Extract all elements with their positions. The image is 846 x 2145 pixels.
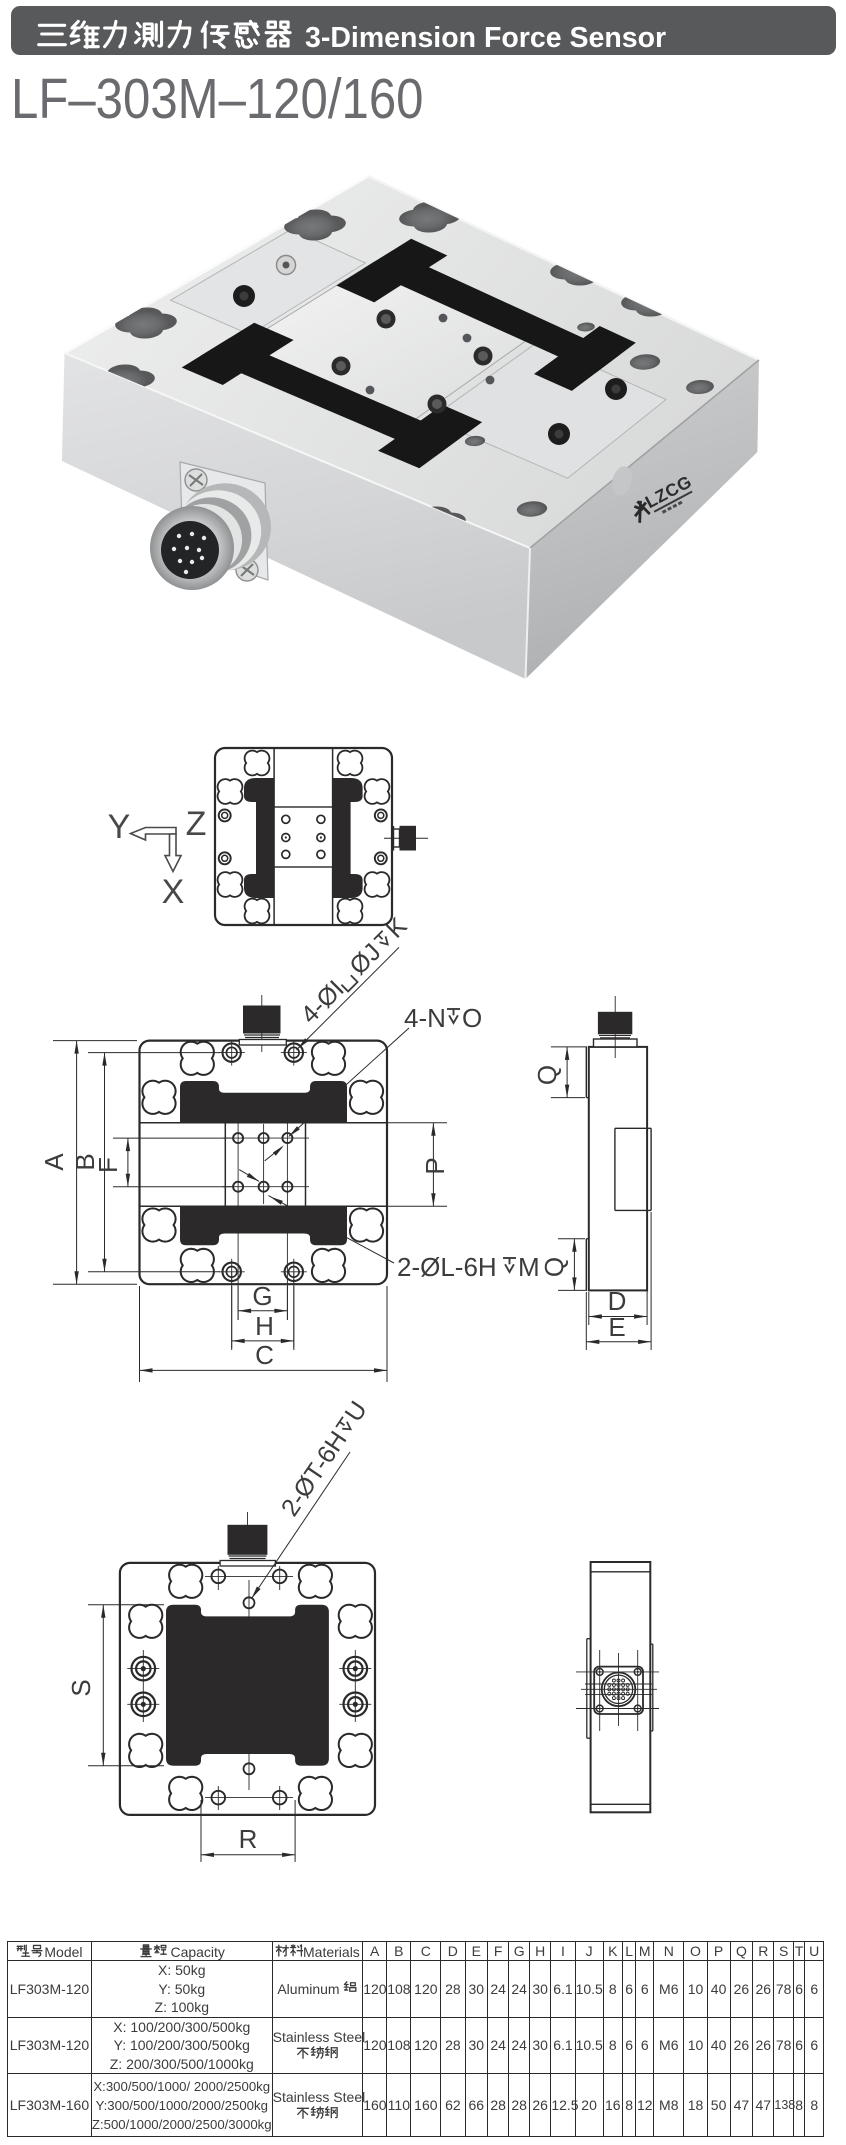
svg-text:Q: Q xyxy=(539,1257,569,1277)
svg-text:Z: Z xyxy=(186,805,207,843)
svg-text:Y: Y xyxy=(108,808,131,846)
svg-text:H: H xyxy=(255,1311,274,1341)
svg-text:P: P xyxy=(420,1157,450,1174)
svg-text:X: X xyxy=(162,873,185,911)
svg-text:2-ØT-6H: 2-ØT-6H xyxy=(276,1426,353,1521)
svg-text:4-N: 4-N xyxy=(404,1003,446,1033)
svg-text:4-ØI: 4-ØI xyxy=(295,975,349,1029)
svg-text:ØJ: ØJ xyxy=(344,938,386,980)
svg-text:O: O xyxy=(462,1003,482,1033)
svg-text:E: E xyxy=(608,1312,625,1342)
svg-text:Q: Q xyxy=(532,1065,562,1085)
svg-text:C: C xyxy=(255,1340,274,1370)
svg-text:M: M xyxy=(518,1252,540,1282)
svg-text:F: F xyxy=(93,1157,123,1173)
svg-text:U: U xyxy=(340,1396,373,1427)
svg-text:A: A xyxy=(39,1153,69,1171)
svg-text:R: R xyxy=(239,1824,258,1854)
svg-text:G: G xyxy=(252,1281,272,1311)
svg-text:S: S xyxy=(66,1679,96,1696)
svg-text:2-ØL-6H: 2-ØL-6H xyxy=(397,1252,497,1282)
